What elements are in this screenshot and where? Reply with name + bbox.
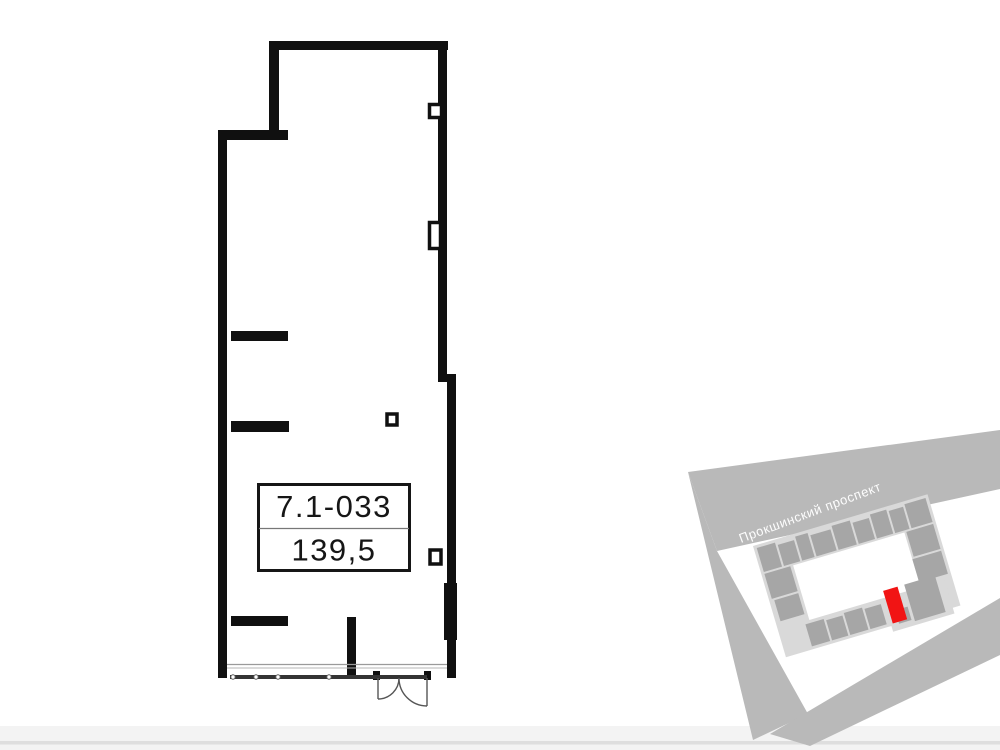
- partition-stub-2: [231, 421, 289, 432]
- unit-label-box: 7.1-033 139,5: [259, 485, 410, 571]
- bottom-strip-line: [0, 741, 1000, 745]
- page-bottom-strip: [0, 726, 1000, 750]
- partition-stub-1: [231, 331, 288, 341]
- shaft-square-low: [430, 550, 441, 564]
- mullion-tick: [231, 675, 235, 679]
- unit-area: 139,5: [291, 533, 376, 568]
- wall-right-upper: [438, 41, 447, 380]
- partition-wall-bottom: [347, 617, 356, 678]
- mullion-tick: [254, 675, 258, 679]
- shaft-square-top: [430, 105, 442, 118]
- wall-upper-left: [269, 41, 279, 140]
- mullion-tick: [276, 675, 280, 679]
- unit-number: 7.1-033: [276, 489, 392, 524]
- wall-step: [218, 130, 288, 140]
- partition-stub-3: [231, 616, 288, 626]
- column: [387, 414, 397, 425]
- floorplan-page: Прокшинский проспект: [0, 0, 1000, 750]
- shaft-rect-mid: [430, 223, 441, 249]
- mullion-tick: [327, 675, 331, 679]
- wall-left: [218, 130, 227, 678]
- wall-top: [269, 41, 448, 50]
- bottom-strip: [0, 726, 1000, 750]
- wall-right-pilaster: [444, 583, 457, 640]
